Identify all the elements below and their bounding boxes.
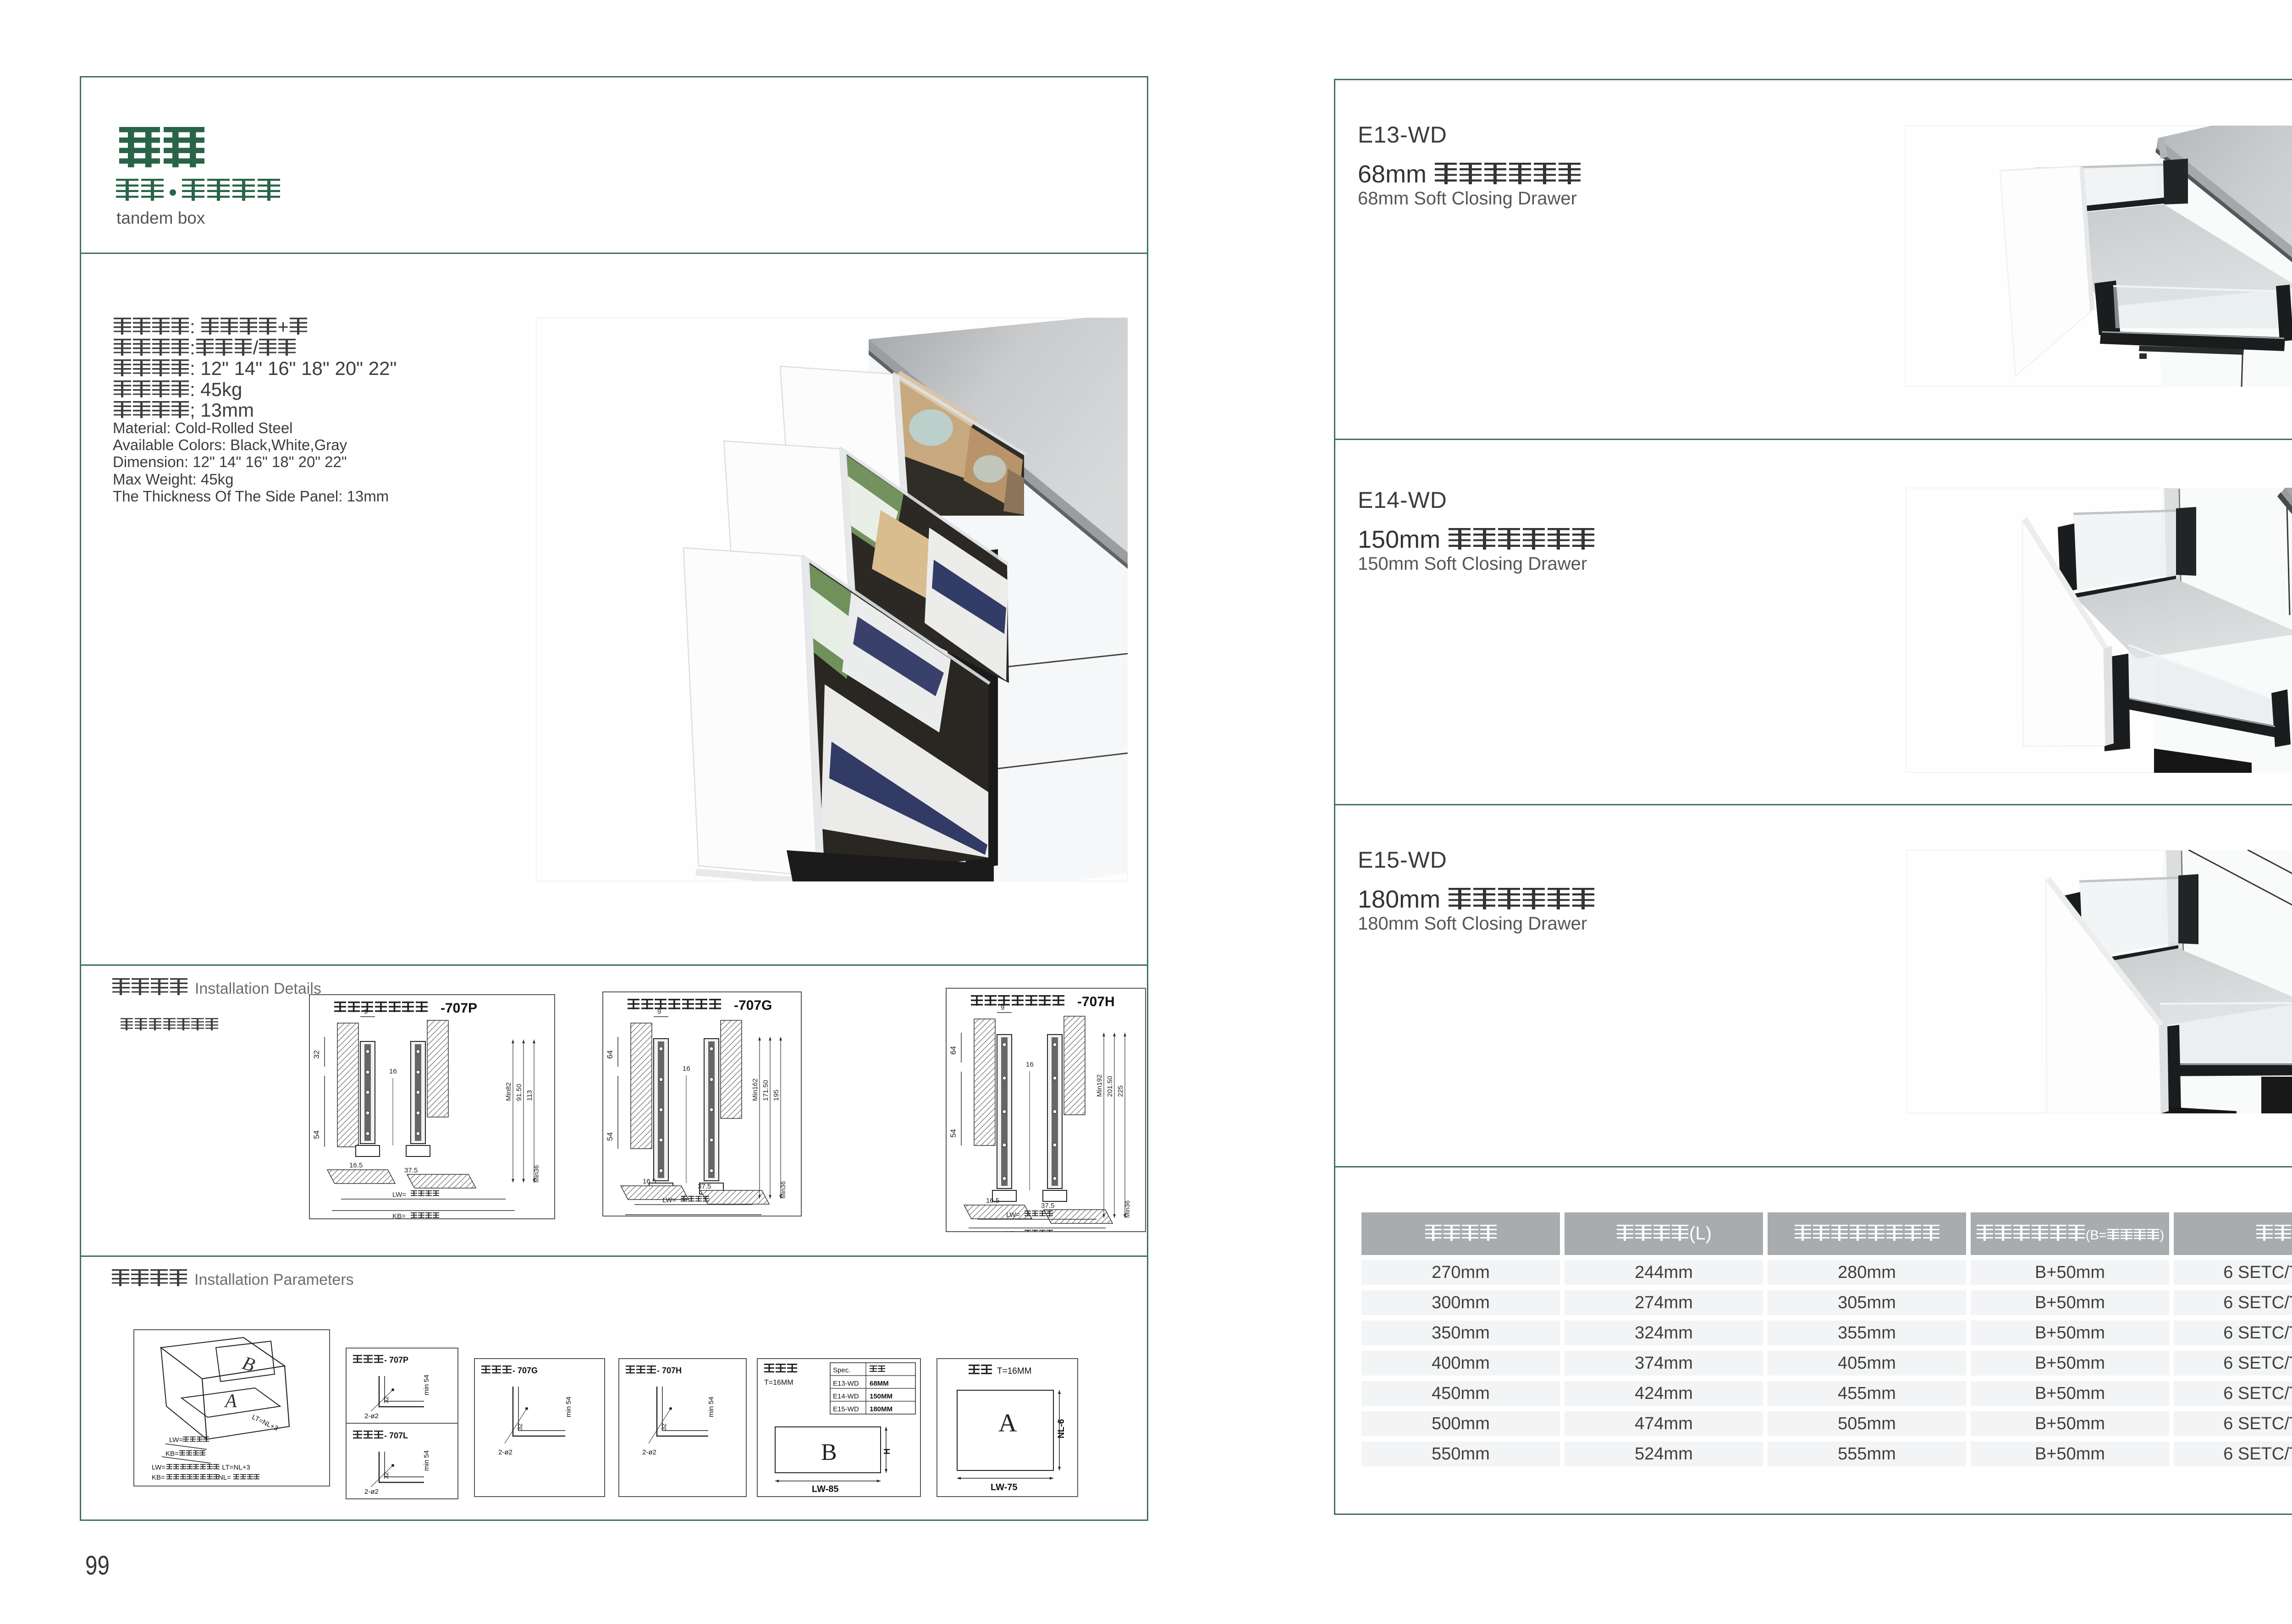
svg-text:A: A — [998, 1409, 1017, 1437]
svg-text:LW=: LW= — [169, 1436, 183, 1444]
svg-text:Min36: Min36 — [779, 1181, 787, 1199]
svg-text:LW-75: LW-75 — [991, 1482, 1018, 1492]
svg-text:32: 32 — [516, 1423, 523, 1431]
svg-text:Min82: Min82 — [505, 1082, 512, 1101]
svg-text:min 54: min 54 — [423, 1450, 430, 1471]
svg-text:NL=: NL= — [218, 1474, 231, 1481]
svg-text:2-ø2: 2-ø2 — [498, 1448, 512, 1456]
svg-text:min 54: min 54 — [423, 1375, 430, 1395]
svg-text:2-ø2: 2-ø2 — [364, 1488, 379, 1496]
svg-text:LW=: LW= — [152, 1464, 165, 1471]
svg-text:113: 113 — [526, 1090, 534, 1101]
svg-text:- 707G: - 707G — [512, 1366, 538, 1375]
svg-text:225: 225 — [1117, 1085, 1124, 1097]
svg-text:E14-WD: E14-WD — [833, 1393, 859, 1400]
svg-text:Min192: Min192 — [1096, 1074, 1103, 1097]
svg-text:KB=: KB= — [392, 1212, 406, 1219]
svg-text:min 54: min 54 — [707, 1397, 715, 1417]
svg-text:32: 32 — [660, 1423, 667, 1431]
svg-text:min 54: min 54 — [565, 1397, 573, 1417]
svg-text:A: A — [224, 1391, 237, 1412]
svg-text:-707G: -707G — [734, 998, 772, 1013]
svg-text:171.50: 171.50 — [762, 1080, 770, 1101]
svg-text:- 707L: - 707L — [384, 1431, 408, 1440]
svg-text:37.5: 37.5 — [404, 1167, 418, 1174]
svg-text:-707H: -707H — [1077, 994, 1115, 1009]
svg-text:Min36: Min36 — [1124, 1200, 1131, 1218]
svg-text:150MM: 150MM — [870, 1393, 893, 1400]
svg-text:16: 16 — [389, 1068, 397, 1075]
svg-text:195: 195 — [772, 1090, 780, 1101]
svg-text:LW=: LW= — [392, 1191, 406, 1199]
svg-text:32: 32 — [382, 1472, 390, 1479]
svg-text:- 707P: - 707P — [384, 1355, 408, 1365]
svg-text:2-ø2: 2-ø2 — [364, 1412, 379, 1420]
svg-text:9: 9 — [364, 1008, 368, 1016]
svg-text:Min36: Min36 — [533, 1165, 540, 1183]
svg-text:201.50: 201.50 — [1106, 1076, 1114, 1097]
svg-text:91.50: 91.50 — [515, 1084, 523, 1101]
svg-text:32: 32 — [312, 1050, 321, 1059]
svg-text:LW-85: LW-85 — [812, 1484, 839, 1494]
svg-text:B: B — [821, 1439, 837, 1465]
svg-text:54: 54 — [312, 1130, 321, 1139]
svg-text:T=16MM: T=16MM — [764, 1379, 793, 1387]
svg-text:9: 9 — [657, 1008, 661, 1016]
svg-text:KB=: KB= — [165, 1450, 179, 1458]
svg-text:KB=: KB= — [152, 1474, 165, 1481]
svg-text:LW=: LW= — [662, 1196, 676, 1204]
svg-text:16: 16 — [683, 1065, 690, 1073]
svg-text:37.5: 37.5 — [1041, 1202, 1054, 1210]
svg-text:E13-WD: E13-WD — [833, 1380, 859, 1387]
svg-text:Spec.: Spec. — [833, 1366, 850, 1374]
svg-text:64: 64 — [606, 1050, 614, 1059]
svg-text:16.5: 16.5 — [349, 1162, 363, 1169]
svg-text:180MM: 180MM — [870, 1405, 893, 1413]
svg-text:9: 9 — [1001, 1004, 1004, 1012]
svg-text:LW=: LW= — [1006, 1211, 1020, 1219]
svg-text:16.5: 16.5 — [986, 1197, 999, 1205]
svg-text:16: 16 — [1026, 1061, 1034, 1068]
svg-text:37.5: 37.5 — [698, 1183, 711, 1190]
svg-text:2-ø2: 2-ø2 — [642, 1448, 656, 1456]
svg-text:H: H — [882, 1448, 892, 1454]
svg-text:NL-6: NL-6 — [1057, 1419, 1066, 1438]
svg-text:32: 32 — [382, 1396, 390, 1404]
svg-text:E15-WD: E15-WD — [833, 1405, 859, 1413]
svg-text:68MM: 68MM — [870, 1380, 889, 1387]
svg-text:: LT=NL+3: : LT=NL+3 — [218, 1464, 250, 1471]
svg-text:64: 64 — [949, 1046, 958, 1055]
svg-text:- 707H: - 707H — [657, 1366, 682, 1375]
svg-text:T=16MM: T=16MM — [997, 1366, 1032, 1376]
svg-text:54: 54 — [949, 1129, 958, 1138]
svg-text:KB=: KB= — [1006, 1230, 1019, 1232]
svg-text:16.5: 16.5 — [643, 1178, 656, 1185]
svg-text:-707P: -707P — [441, 1001, 477, 1016]
svg-text:54: 54 — [606, 1132, 614, 1141]
svg-text:Min162: Min162 — [751, 1079, 759, 1101]
